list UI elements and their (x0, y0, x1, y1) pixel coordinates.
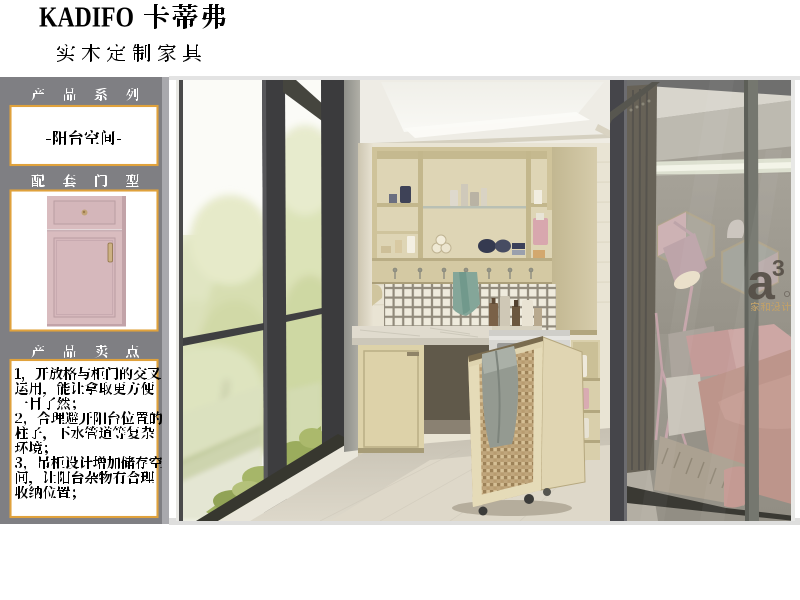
svg-text:3: 3 (772, 255, 785, 281)
